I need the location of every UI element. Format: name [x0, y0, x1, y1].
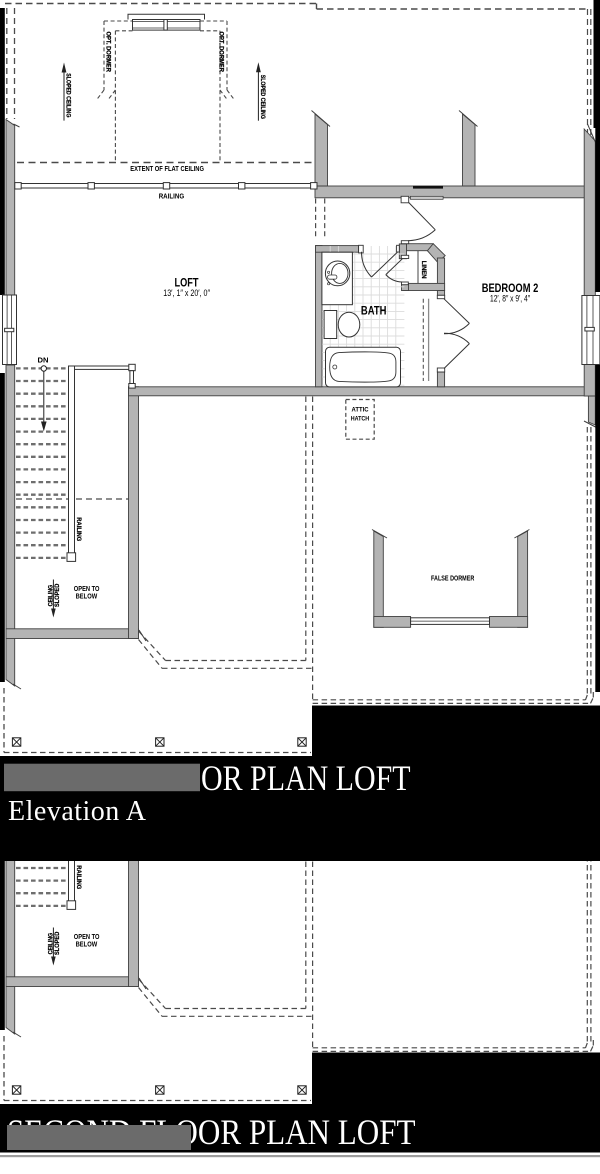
svg-text:OR PLAN LOFT: OR PLAN LOFT	[201, 758, 411, 798]
svg-text:FALSE DORMER: FALSE DORMER	[431, 575, 474, 582]
svg-text:Elevation A: Elevation A	[8, 796, 147, 827]
